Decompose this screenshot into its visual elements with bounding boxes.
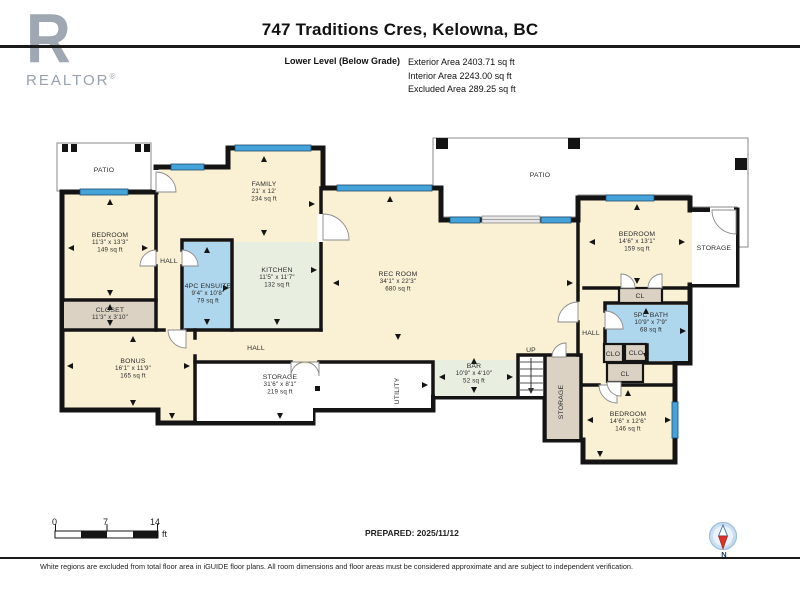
- footer-divider: [0, 557, 800, 559]
- room-label-family: FAMILY21' x 12'234 sq ft: [251, 181, 277, 202]
- room-label-storage: STORAGE: [697, 245, 732, 252]
- room-label-closet: CLOSET11'3" x 3'10": [92, 307, 128, 321]
- room-label-hall: HALL: [247, 345, 265, 352]
- room-label-storage: STORAGE31'6" x 8'1"219 sq ft: [263, 374, 298, 395]
- scale-unit: ft: [162, 529, 167, 539]
- prepared-date: PREPARED: 2025/11/12: [365, 528, 459, 538]
- room-storage-main: [197, 364, 313, 421]
- scale-tick-7: 7: [103, 517, 108, 527]
- room-utility: [313, 364, 431, 408]
- room-label-up: UP: [526, 347, 536, 354]
- room-label-cl: CL: [620, 371, 629, 378]
- floor-plan-drawing: PATIOPATIOBEDROOM11'3" x 13'3"149 sq ftH…: [0, 0, 800, 600]
- room-label-hall: HALL: [582, 330, 600, 337]
- room-label-patio: PATIO: [94, 167, 114, 174]
- room-label-hall: HALL: [160, 258, 178, 265]
- room-label-kitchen: KITCHEN11'5" x 11'7"132 sq ft: [259, 267, 295, 288]
- scale-tick-0: 0: [52, 517, 57, 527]
- scale-tick-14: 14: [150, 517, 160, 527]
- room-label-cl: CL: [635, 293, 644, 300]
- sliding-door: [482, 216, 540, 223]
- disclaimer-text: White regions are excluded from total fl…: [40, 562, 780, 571]
- room-label-storage: STORAGE: [558, 384, 565, 419]
- room-label-utility: UTILITY: [394, 377, 401, 404]
- room-label-clo: CLO: [606, 351, 621, 358]
- room-label-patio: PATIO: [530, 172, 550, 179]
- utility-post: [315, 386, 320, 391]
- room-label-clo: CLO: [629, 350, 644, 357]
- floorplan-page: R REALTOR® 747 Traditions Cres, Kelowna,…: [0, 0, 800, 600]
- compass-icon: [710, 523, 737, 550]
